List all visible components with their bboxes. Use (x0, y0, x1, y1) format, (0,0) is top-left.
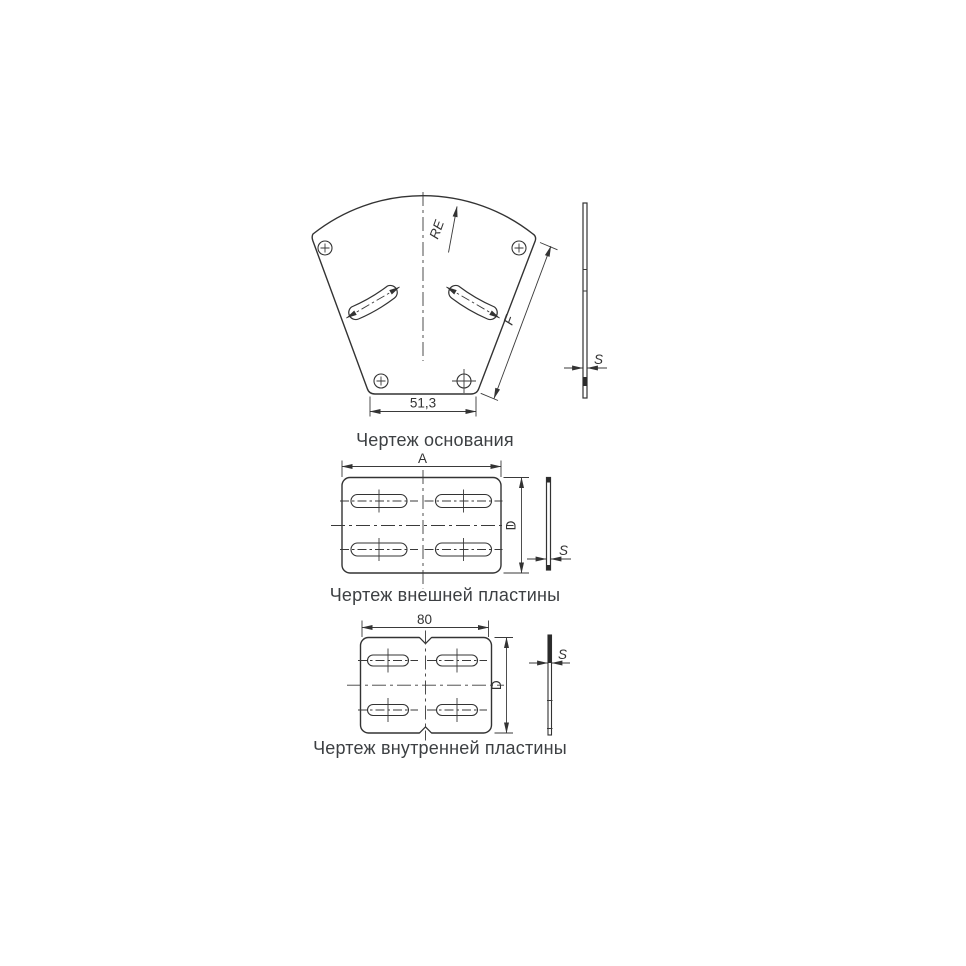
a-label: A (418, 451, 427, 466)
dimension-height-d-inner: D (489, 638, 513, 734)
base-side-weld-mark (583, 377, 587, 386)
dimension-bottom-width: 51,3 (370, 396, 476, 417)
inner-plate-drawing-view: 80 D S Чертеж внутренней пластины (313, 612, 570, 758)
w80-label: 80 (417, 612, 432, 627)
s1-label: S (594, 352, 603, 367)
outer-plate-side-view: S (527, 478, 571, 571)
d-outer-label: D (504, 520, 519, 530)
s3-label: S (558, 647, 567, 662)
base-side-profile (583, 203, 587, 398)
inner-plate-side-view: S (529, 635, 570, 735)
outer-plate-caption: Чертеж внешней пластины (330, 585, 561, 605)
outer-plate-drawing-view: A D S Чертеж внешней пластины (330, 451, 571, 605)
inner-side-cap-top (548, 635, 552, 663)
f-extension-top (540, 243, 558, 250)
outer-side-cap-top (547, 478, 551, 483)
base-side-view: S (564, 203, 607, 398)
inner-plate-caption: Чертеж внутренней пластины (313, 738, 567, 758)
dimension-width-a: A (342, 451, 501, 477)
dimension-height-d-outer: D (504, 478, 530, 574)
outer-side-cap-bottom (547, 565, 551, 570)
drawing-sheet: RE F 51,3 S Чертеж основани (0, 0, 966, 966)
d-inner-label: D (489, 680, 504, 690)
bottom-width-label: 51,3 (410, 396, 436, 411)
base-caption: Чертеж основания (356, 430, 514, 450)
base-drawing-view: RE F 51,3 S Чертеж основани (312, 192, 607, 450)
outer-side-profile (547, 478, 551, 571)
technical-drawing-canvas: RE F 51,3 S Чертеж основани (0, 0, 966, 966)
base-plate-outline (312, 196, 535, 394)
s2-label: S (559, 543, 568, 558)
